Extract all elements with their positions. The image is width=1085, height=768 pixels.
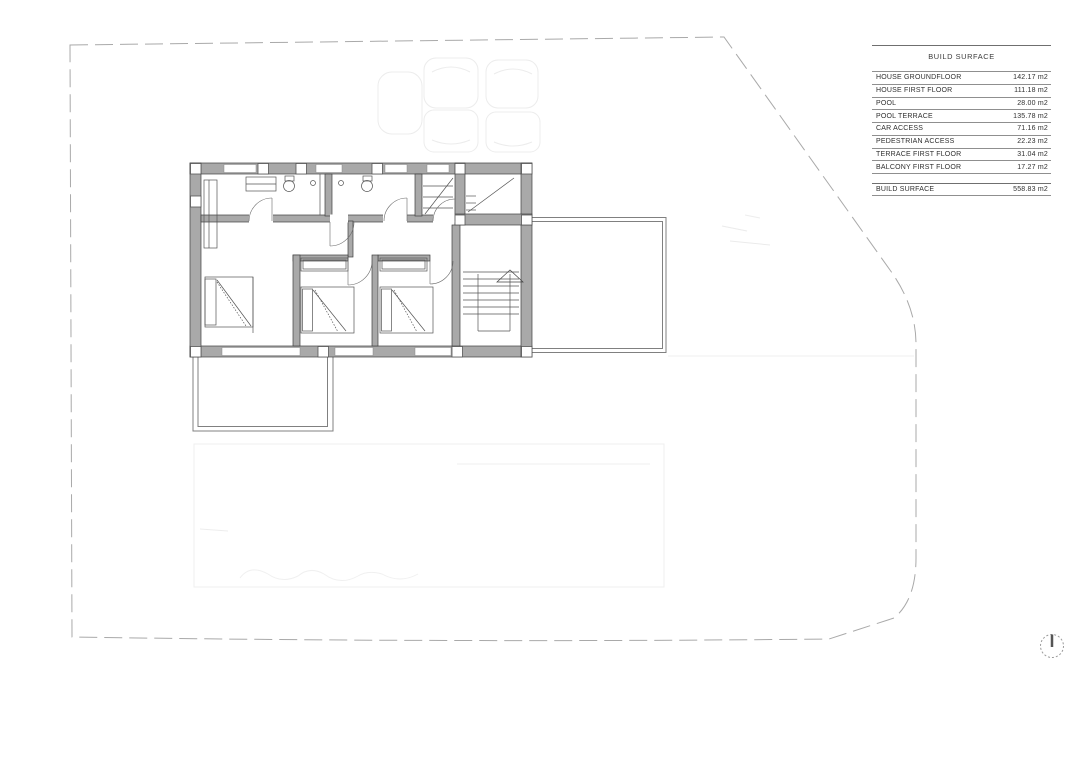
car-outline (424, 58, 478, 108)
window (335, 348, 373, 356)
table-row: BALCONY FIRST FLOOR 17.27 m2 (872, 160, 1051, 173)
window (385, 165, 407, 173)
row-label: CAR ACCESS (876, 125, 923, 132)
row-label: POOL TERRACE (876, 113, 933, 120)
terrace-first-floor (532, 218, 666, 353)
bed-symbol (301, 287, 354, 333)
row-value: 17.27 m2 (1017, 164, 1048, 171)
car-outline (486, 60, 538, 108)
wall-bath-partition (415, 174, 422, 216)
row-value: 135.78 m2 (1013, 113, 1048, 120)
closet-shelves (423, 178, 453, 214)
fixtures (204, 174, 523, 333)
row-value: 22.23 m2 (1017, 138, 1048, 145)
groundfloor-underlay (194, 58, 914, 587)
wall-left (190, 163, 201, 357)
table-row: TERRACE FIRST FLOOR 31.04 m2 (872, 148, 1051, 161)
row-label: TERRACE FIRST FLOOR (876, 151, 961, 158)
table-row: POOL TERRACE 135.78 m2 (872, 109, 1051, 122)
build-surface-table: BUILD SURFACE HOUSE GROUNDFLOOR 142.17 m… (872, 45, 1051, 196)
row-value: 31.04 m2 (1017, 151, 1048, 158)
window (224, 165, 256, 173)
bed-symbol (205, 277, 253, 333)
row-value: 71.16 m2 (1017, 125, 1048, 132)
table-row: PEDESTRIAN ACCESS 22.23 m2 (872, 135, 1051, 148)
window (427, 165, 449, 173)
wardrobe-left (204, 180, 217, 248)
wall-bedroom-partition (293, 255, 300, 346)
stairs (463, 270, 523, 331)
wall-stairhall-bottom (455, 214, 532, 225)
pool-edge-faint (240, 570, 418, 581)
bathroom-fixtures (339, 176, 373, 192)
wall-hall-stub (348, 221, 353, 257)
wall-bedroom-partition (372, 255, 378, 346)
table-total-row: BUILD SURFACE 558.83 m2 (872, 183, 1051, 196)
bathroom-fixtures (246, 174, 320, 215)
table-rows: HOUSE GROUNDFLOOR 142.17 m2 HOUSE FIRST … (872, 71, 1051, 174)
walls (190, 163, 532, 357)
wall-bath-partition (325, 174, 332, 216)
wall-right (521, 163, 532, 357)
car-outline (424, 110, 478, 152)
table-row: POOL 28.00 m2 (872, 97, 1051, 110)
table-row: HOUSE GROUNDFLOOR 142.17 m2 (872, 71, 1051, 84)
total-value: 558.83 m2 (1013, 186, 1048, 193)
row-label: BALCONY FIRST FLOOR (876, 164, 961, 171)
wardrobe-symbol (380, 258, 427, 271)
wardrobe-symbol (301, 258, 348, 271)
columns (191, 164, 533, 358)
car-outline (378, 72, 422, 134)
row-label: POOL (876, 100, 896, 107)
row-label: HOUSE FIRST FLOOR (876, 87, 952, 94)
table-row: HOUSE FIRST FLOOR 111.18 m2 (872, 84, 1051, 97)
row-label: PEDESTRIAN ACCESS (876, 138, 954, 145)
window (415, 348, 451, 356)
table-row: CAR ACCESS 71.16 m2 (872, 122, 1051, 135)
window (316, 165, 342, 173)
table-title: BUILD SURFACE (872, 46, 1051, 71)
bed-symbol (380, 287, 433, 333)
drawing-sheet: BUILD SURFACE HOUSE GROUNDFLOOR 142.17 m… (0, 0, 1085, 768)
row-label: HOUSE GROUNDFLOOR (876, 74, 961, 81)
north-indicator-icon (1041, 635, 1064, 658)
row-value: 111.18 m2 (1014, 87, 1048, 94)
balcony-first-floor (193, 357, 333, 431)
wall-stair-left (452, 225, 460, 346)
row-value: 142.17 m2 (1013, 74, 1048, 81)
window (222, 348, 300, 356)
closet-shelves (466, 178, 514, 212)
row-value: 28.00 m2 (1017, 100, 1048, 107)
total-label: BUILD SURFACE (876, 186, 934, 193)
